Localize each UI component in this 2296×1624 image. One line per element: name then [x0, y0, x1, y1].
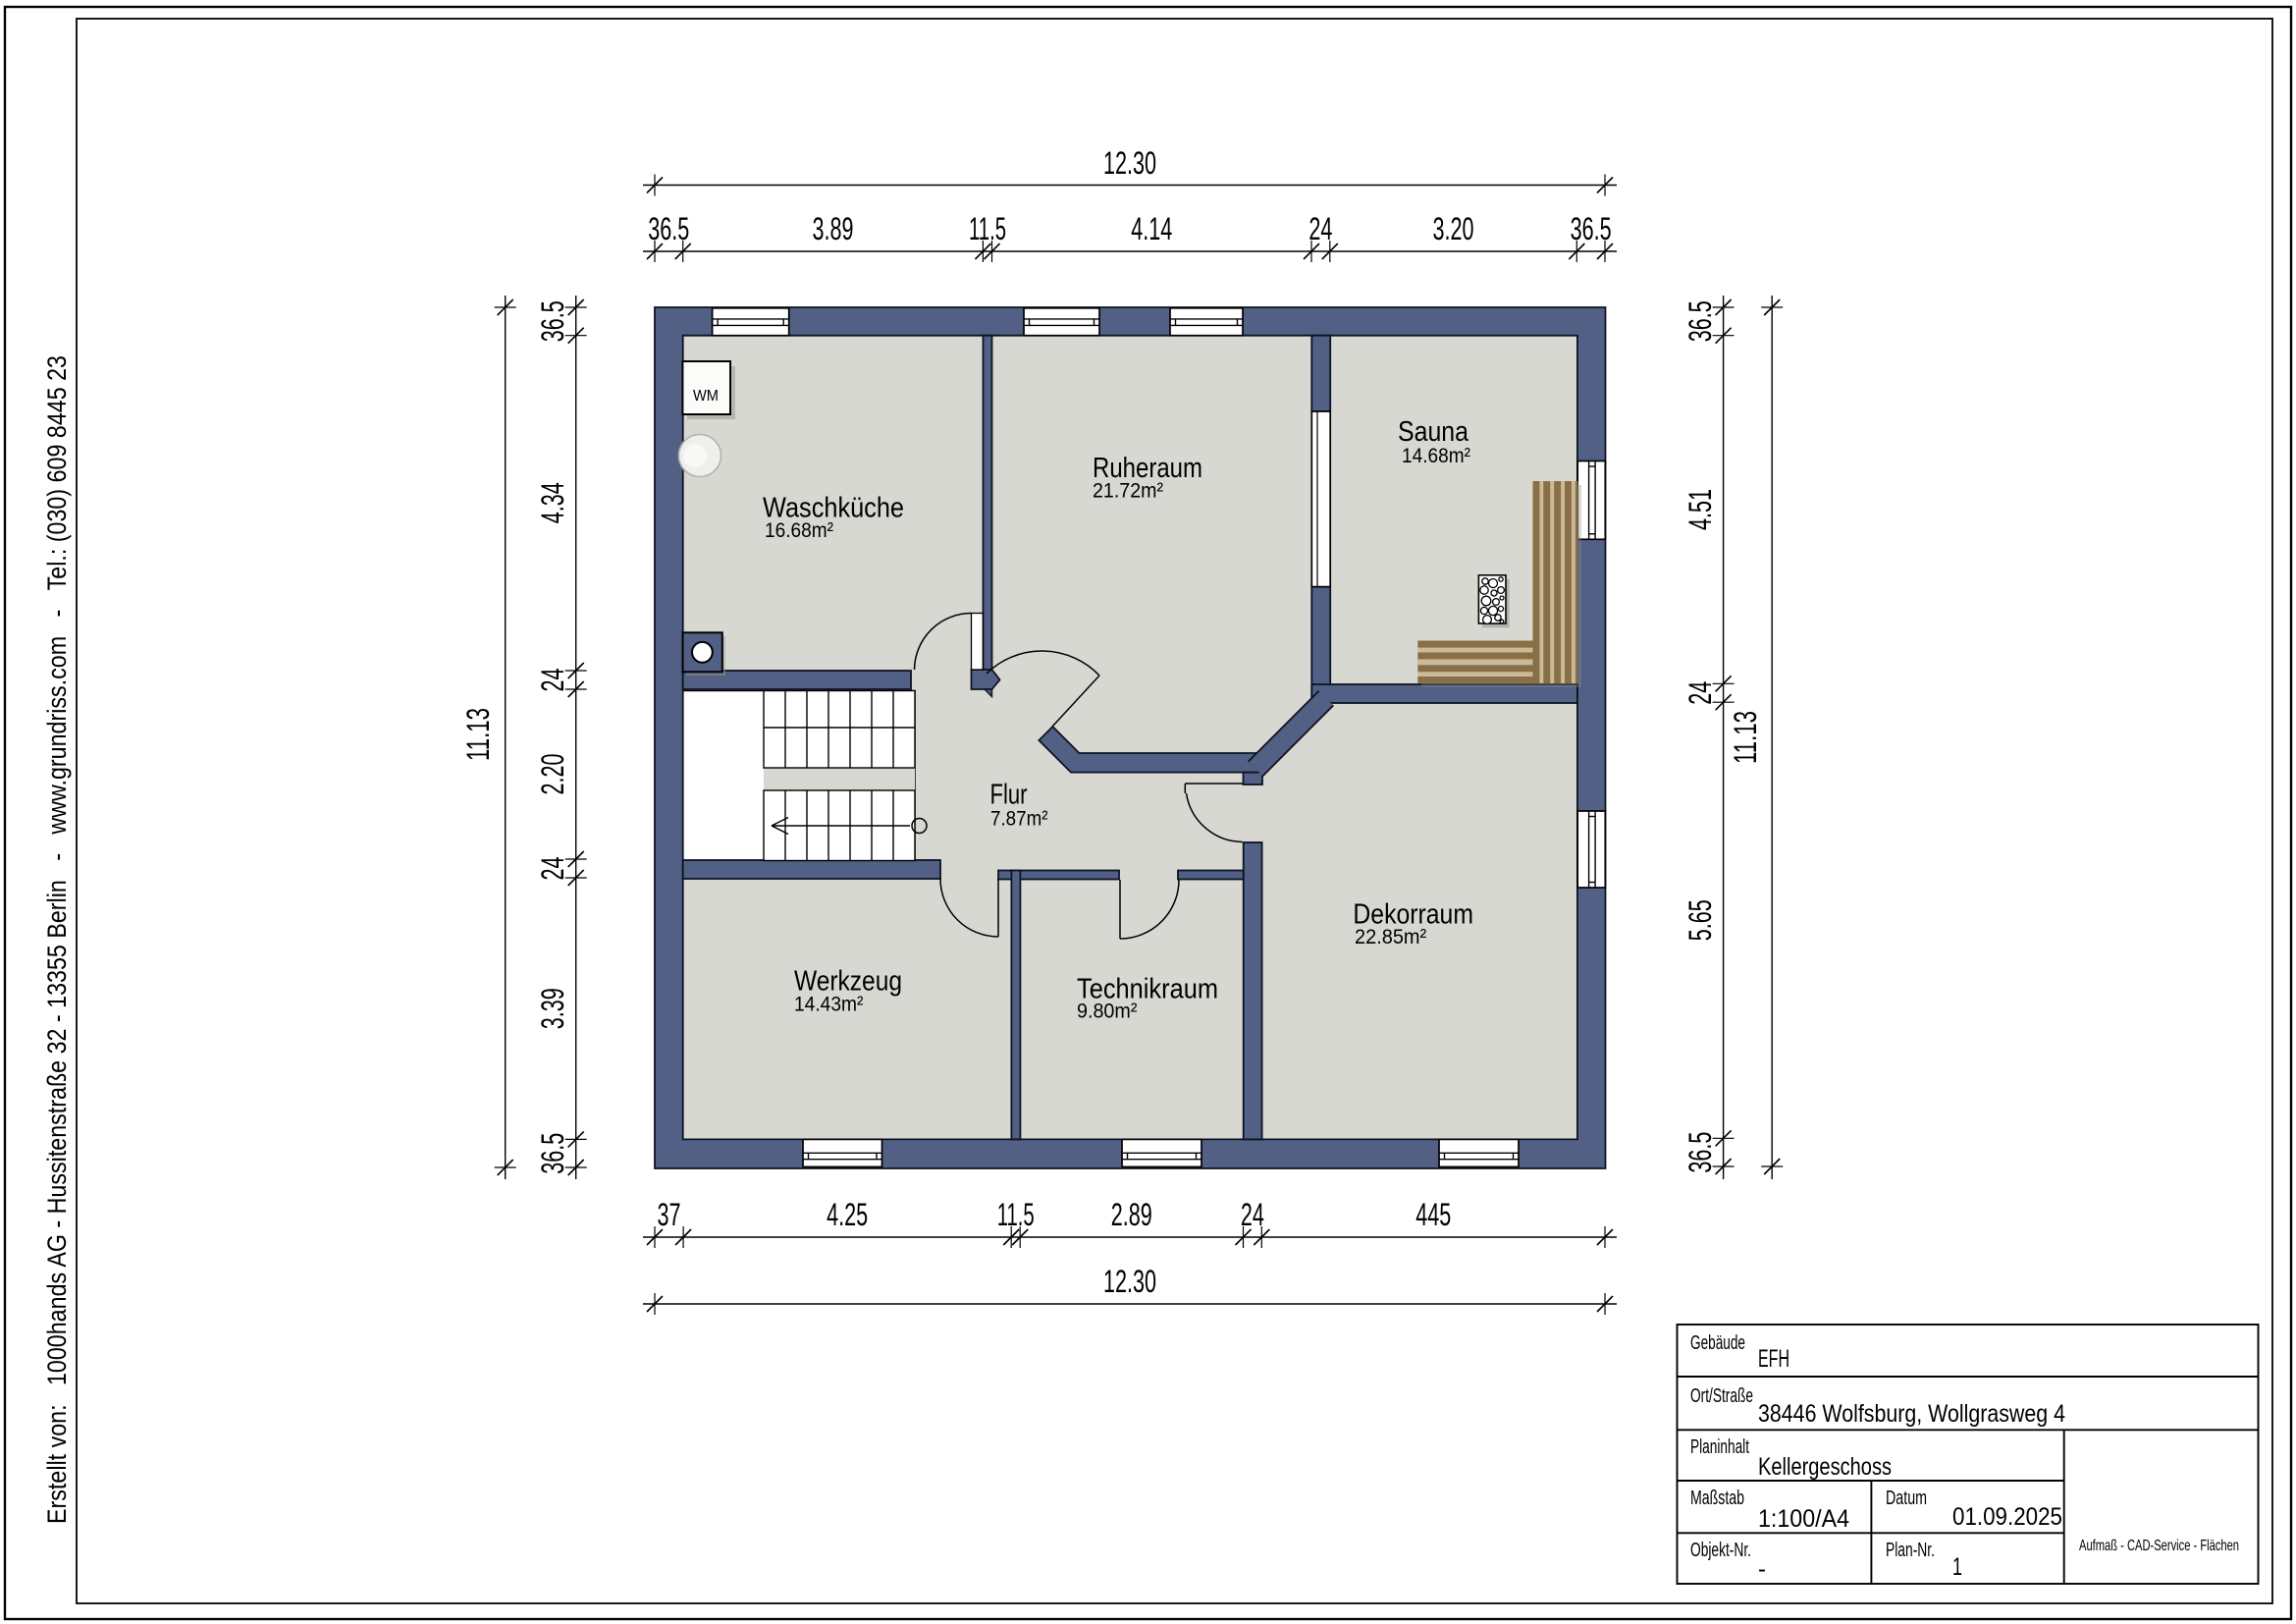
svg-text:Objekt-Nr.: Objekt-Nr.: [1690, 1540, 1751, 1561]
svg-text:22.85m²: 22.85m²: [1355, 926, 1426, 948]
svg-text:Flur: Flur: [990, 780, 1028, 811]
svg-text:01.09.2025: 01.09.2025: [1952, 1503, 2062, 1531]
svg-text:14.68m²: 14.68m²: [1402, 445, 1470, 467]
svg-text:-: -: [1758, 1555, 1766, 1583]
svg-text:11.5: 11.5: [997, 1197, 1035, 1232]
svg-text:3.89: 3.89: [813, 211, 854, 246]
svg-text:Maßstab: Maßstab: [1690, 1488, 1744, 1509]
svg-text:12.30: 12.30: [1103, 1264, 1156, 1299]
svg-text:24: 24: [1241, 1197, 1264, 1232]
svg-text:Erstellt von: 1000hands AG -: Erstellt von: 1000hands AG - Hussitenstr…: [42, 355, 72, 1524]
svg-text:4.14: 4.14: [1131, 211, 1172, 246]
svg-text:4.34: 4.34: [535, 482, 570, 523]
svg-text:36.5: 36.5: [1682, 1132, 1718, 1173]
svg-text:24: 24: [535, 857, 570, 881]
svg-text:38446 Wolfsburg, Wollgrasweg 4: 38446 Wolfsburg, Wollgrasweg 4: [1758, 1400, 2065, 1428]
svg-text:3.20: 3.20: [1433, 211, 1474, 246]
svg-text:11.5: 11.5: [969, 211, 1006, 246]
svg-text:1: 1: [1952, 1553, 1962, 1581]
svg-text:Gebäude: Gebäude: [1690, 1332, 1745, 1354]
svg-text:3.39: 3.39: [535, 988, 570, 1029]
svg-text:Plan-Nr.: Plan-Nr.: [1886, 1540, 1935, 1561]
svg-text:14.43m²: 14.43m²: [794, 993, 863, 1015]
svg-text:445: 445: [1415, 1197, 1451, 1232]
svg-text:5.65: 5.65: [1682, 899, 1718, 941]
svg-text:2.89: 2.89: [1111, 1197, 1152, 1232]
svg-text:36.5: 36.5: [535, 1133, 570, 1174]
svg-text:4.25: 4.25: [827, 1197, 868, 1232]
svg-text:24: 24: [1682, 681, 1718, 705]
svg-text:Planinhalt: Planinhalt: [1690, 1436, 1749, 1458]
svg-text:7.87m²: 7.87m²: [990, 808, 1048, 831]
svg-text:21.72m²: 21.72m²: [1093, 480, 1163, 503]
svg-text:11.13: 11.13: [1728, 711, 1763, 764]
svg-text:37: 37: [658, 1197, 681, 1232]
svg-text:Sauna: Sauna: [1398, 416, 1469, 448]
svg-text:24: 24: [1308, 211, 1332, 246]
svg-text:16.68m²: 16.68m²: [765, 519, 833, 542]
svg-text:36.5: 36.5: [535, 300, 570, 342]
svg-text:Ort/Straße: Ort/Straße: [1690, 1385, 1753, 1407]
svg-text:11.13: 11.13: [460, 708, 496, 761]
svg-text:36.5: 36.5: [648, 211, 689, 246]
svg-text:24: 24: [535, 669, 570, 692]
svg-text:9.80m²: 9.80m²: [1077, 1001, 1137, 1023]
svg-text:4.51: 4.51: [1682, 489, 1718, 530]
svg-text:12.30: 12.30: [1103, 145, 1156, 181]
svg-text:36.5: 36.5: [1571, 211, 1612, 246]
svg-text:Aufmaß - CAD-Service - Flächen: Aufmaß - CAD-Service - Flächen: [2079, 1538, 2239, 1554]
svg-text:2.20: 2.20: [535, 754, 570, 795]
svg-text:WM: WM: [693, 388, 719, 405]
svg-text:1:100/A4: 1:100/A4: [1758, 1505, 1849, 1533]
svg-text:36.5: 36.5: [1682, 300, 1718, 342]
svg-text:EFH: EFH: [1758, 1345, 1789, 1373]
svg-text:Kellergeschoss: Kellergeschoss: [1758, 1453, 1892, 1481]
svg-text:Datum: Datum: [1886, 1488, 1927, 1509]
